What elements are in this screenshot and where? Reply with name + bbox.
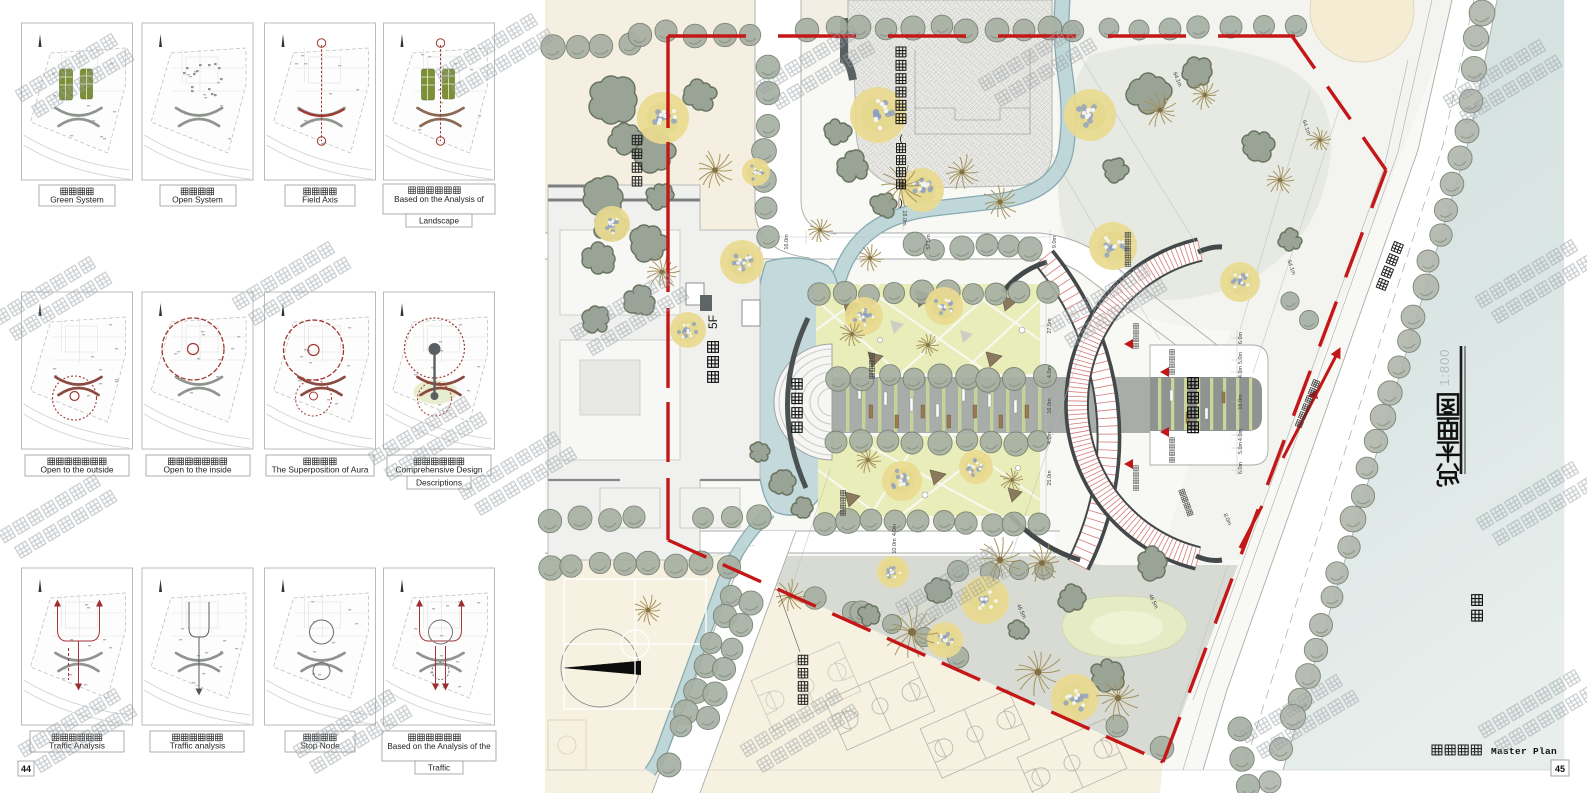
- svg-text:Based on the Analysis of the: Based on the Analysis of the: [387, 742, 491, 751]
- svg-text:16.0m: 16.0m: [1238, 394, 1244, 410]
- svg-text:9.0m: 9.0m: [1052, 235, 1058, 248]
- svg-text:4.0m: 4.0m: [1047, 365, 1053, 378]
- svg-text:16.0m: 16.0m: [784, 234, 790, 250]
- svg-text:Green System: Green System: [50, 195, 104, 205]
- svg-text:Landscape: Landscape: [419, 217, 460, 226]
- svg-text:Traffic analysis: Traffic analysis: [170, 741, 225, 751]
- svg-text:1:800: 1:800: [1437, 348, 1452, 386]
- svg-text:44: 44: [21, 764, 31, 774]
- svg-text:16.0m: 16.0m: [1047, 398, 1053, 414]
- svg-text:6.0m: 6.0m: [1238, 331, 1244, 344]
- svg-text:4.0m: 4.0m: [1047, 431, 1053, 444]
- svg-text:25.0m: 25.0m: [1047, 470, 1053, 486]
- svg-text:Master Plan: Master Plan: [1491, 746, 1557, 757]
- svg-text:5F: 5F: [706, 315, 720, 329]
- svg-text:4.0m: 4.0m: [892, 523, 898, 536]
- svg-text:5.0m: 5.0m: [1238, 441, 1244, 454]
- svg-text:The Superposition of Aura: The Superposition of Aura: [272, 465, 369, 475]
- svg-text:Descriptions: Descriptions: [416, 478, 462, 488]
- svg-text:Traffic: Traffic: [428, 764, 450, 773]
- svg-text:45: 45: [1555, 764, 1565, 774]
- svg-text:Open to the inside: Open to the inside: [164, 465, 232, 475]
- svg-text:Open to the outside: Open to the outside: [40, 465, 113, 475]
- svg-text:5.0m: 5.0m: [1238, 351, 1244, 364]
- svg-text:4.0m: 4.0m: [1238, 428, 1244, 441]
- svg-text:): ): [899, 198, 902, 209]
- svg-text:Open System: Open System: [172, 195, 223, 205]
- svg-text:57.5m: 57.5m: [926, 234, 932, 250]
- svg-text:18.0m: 18.0m: [901, 210, 907, 226]
- svg-text:10.0m: 10.0m: [892, 538, 898, 554]
- svg-text:Field Axis: Field Axis: [302, 195, 338, 205]
- svg-text:4.0m: 4.0m: [1238, 365, 1244, 378]
- svg-text:Based on the Analysis of: Based on the Analysis of: [394, 195, 484, 204]
- svg-text:6.0m: 6.0m: [1238, 461, 1244, 474]
